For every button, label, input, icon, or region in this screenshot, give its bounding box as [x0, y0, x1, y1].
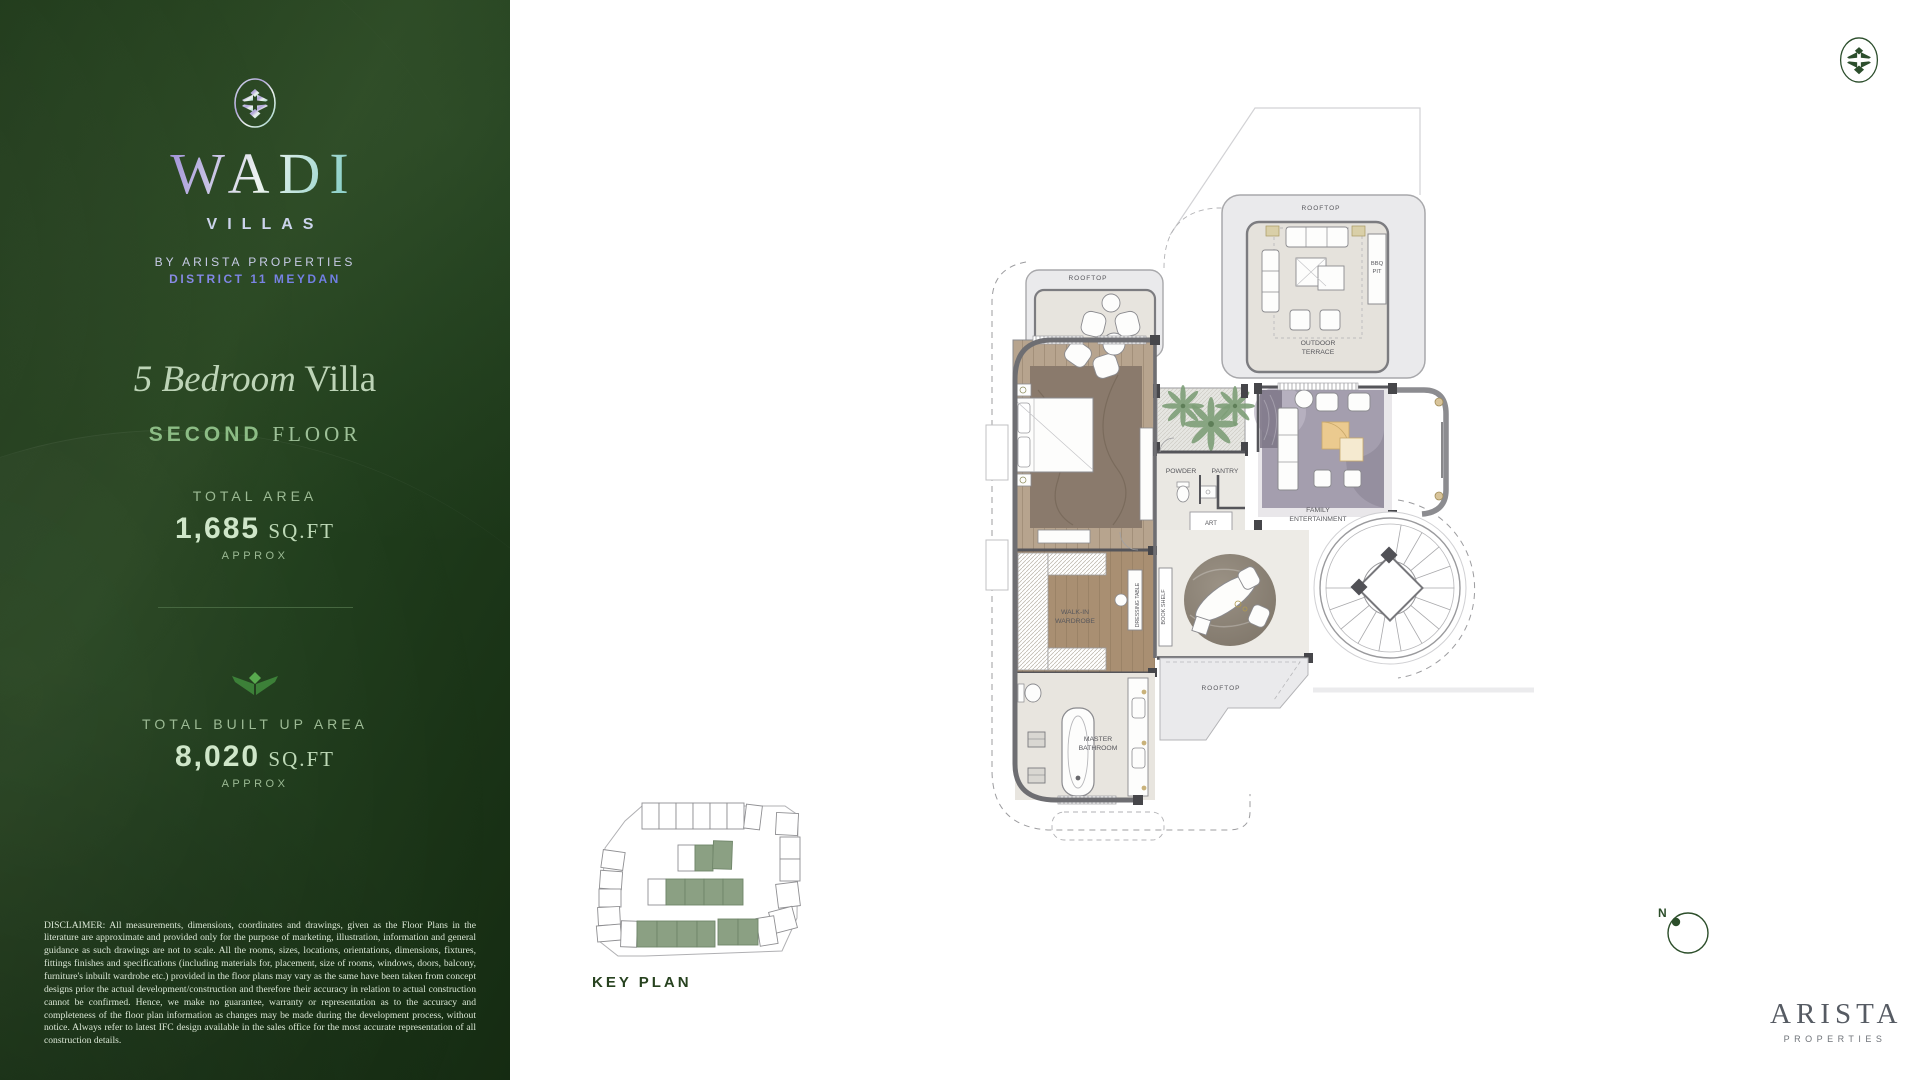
sink	[1200, 486, 1216, 498]
room-label: PANTRY	[1212, 468, 1239, 475]
sofa	[1262, 250, 1279, 312]
total-area-value: 1,685 SQ.FT	[0, 512, 510, 546]
wardrobe-unit	[1140, 428, 1153, 520]
unit-title-bedrooms: 5 Bedroom	[134, 359, 296, 400]
sofa	[1286, 227, 1348, 247]
ottoman	[1344, 470, 1361, 487]
brand-villas: VILLAS	[0, 216, 510, 234]
room-label: BBQ	[1371, 261, 1384, 267]
powder-pantry: POWDER PANTRY ART	[1157, 452, 1245, 532]
corner-emblem-icon	[1836, 34, 1882, 91]
rooftop-terrace-block: ROOFTOP BBQ PIT OUTDOOR TERRACE	[1222, 195, 1425, 378]
chair	[1290, 310, 1310, 330]
room-label: ROOFTOP	[1201, 685, 1240, 692]
key-plan-label: KEY PLAN	[592, 974, 692, 991]
room-label: ROOFTOP	[1068, 275, 1107, 282]
disclaimer-text: DISCLAIMER: All measurements, dimensions…	[44, 920, 476, 1048]
built-up-label: TOTAL BUILT UP AREA	[0, 716, 510, 732]
brand-district: DISTRICT 11 MEYDAN	[0, 272, 510, 286]
room-label: FAMILY	[1306, 507, 1330, 514]
north-compass: N	[1650, 898, 1720, 973]
room-label: BATHROOM	[1079, 745, 1118, 752]
study-hall: BOOK SHELF	[1157, 530, 1313, 663]
family-entertainment: FAMILY ENTERTAINMENT	[1254, 383, 1446, 531]
total-area-unit: SQ.FT	[268, 519, 335, 543]
bench	[1038, 530, 1090, 543]
room-label: POWDER	[1166, 468, 1197, 475]
developer-logo-name: ARISTA	[1770, 998, 1900, 1031]
toilet	[1025, 684, 1041, 702]
palm-tree	[1215, 386, 1255, 426]
floor-name-light: FLOOR	[272, 422, 361, 446]
total-area-label: TOTAL AREA	[0, 488, 510, 504]
built-up-unit: SQ.FT	[268, 747, 335, 771]
room-label: OUTDOOR	[1301, 340, 1336, 347]
floor-name-bold: SECOND	[149, 423, 263, 446]
brand-byline: BY ARISTA PROPERTIES	[0, 255, 510, 269]
key-plan-map	[585, 793, 810, 998]
chair	[1316, 393, 1338, 411]
room-label: TERRACE	[1302, 349, 1335, 356]
sofa	[1278, 408, 1298, 490]
floor-name: SECOND FLOOR	[0, 422, 510, 447]
floor-plan: ROOFTOP BBQ PIT OUTDOOR TERRACE ROOFTOP	[978, 100, 1548, 875]
toilet	[1177, 486, 1189, 502]
leaf-icon	[0, 670, 510, 703]
built-up-number: 8,020	[175, 740, 260, 773]
vanity	[1128, 678, 1148, 796]
unit-title: 5 Bedroom Villa	[0, 358, 510, 401]
room-label: ART	[1205, 521, 1217, 527]
courtyard	[1153, 384, 1255, 456]
room-label: WARDROBE	[1055, 618, 1095, 625]
chair	[1320, 310, 1340, 330]
unit-title-villa: Villa	[304, 359, 376, 400]
room-label: WALK-IN	[1061, 609, 1089, 616]
brand-panel: WADI VILLAS BY ARISTA PROPERTIES DISTRIC…	[0, 0, 510, 1080]
developer-logo: ARISTA PROPERTIES	[1770, 998, 1900, 1044]
total-area-number: 1,685	[175, 512, 260, 545]
built-up-value: 8,020 SQ.FT	[0, 740, 510, 774]
divider-line	[158, 607, 353, 608]
room-label: ENTERTAINMENT	[1289, 516, 1346, 523]
room-label: ROOFTOP	[1301, 205, 1340, 212]
chair	[1348, 393, 1370, 411]
walk-in-wardrobe: WALK-IN WARDROBE DRESSING TABLE	[1015, 546, 1157, 677]
bedroom	[1013, 333, 1155, 560]
brand-wordmark: WADI	[0, 140, 510, 207]
bathtub	[1062, 708, 1094, 796]
room-label: DRESSING TABLE	[1135, 582, 1141, 627]
room-label: BOOK SHELF	[1161, 589, 1167, 625]
compass-dot	[1672, 918, 1680, 926]
master-bathroom: MASTER BATHROOM	[1015, 673, 1155, 804]
rooftop-bottom: ROOFTOP	[1160, 658, 1534, 740]
spiral-staircase	[1314, 512, 1466, 664]
brochure-page: { "brand": { "wordmark": "WADI", "villas…	[0, 0, 1920, 1080]
total-area-approx: APPROX	[0, 550, 510, 562]
built-up-approx: APPROX	[0, 778, 510, 790]
ottoman	[1314, 470, 1331, 487]
room-label: MASTER	[1084, 736, 1112, 743]
room-label: PIT	[1372, 269, 1381, 275]
compass-north-label: N	[1658, 906, 1667, 920]
developer-logo-sub: PROPERTIES	[1770, 1034, 1900, 1044]
wadi-emblem-icon	[0, 76, 510, 135]
